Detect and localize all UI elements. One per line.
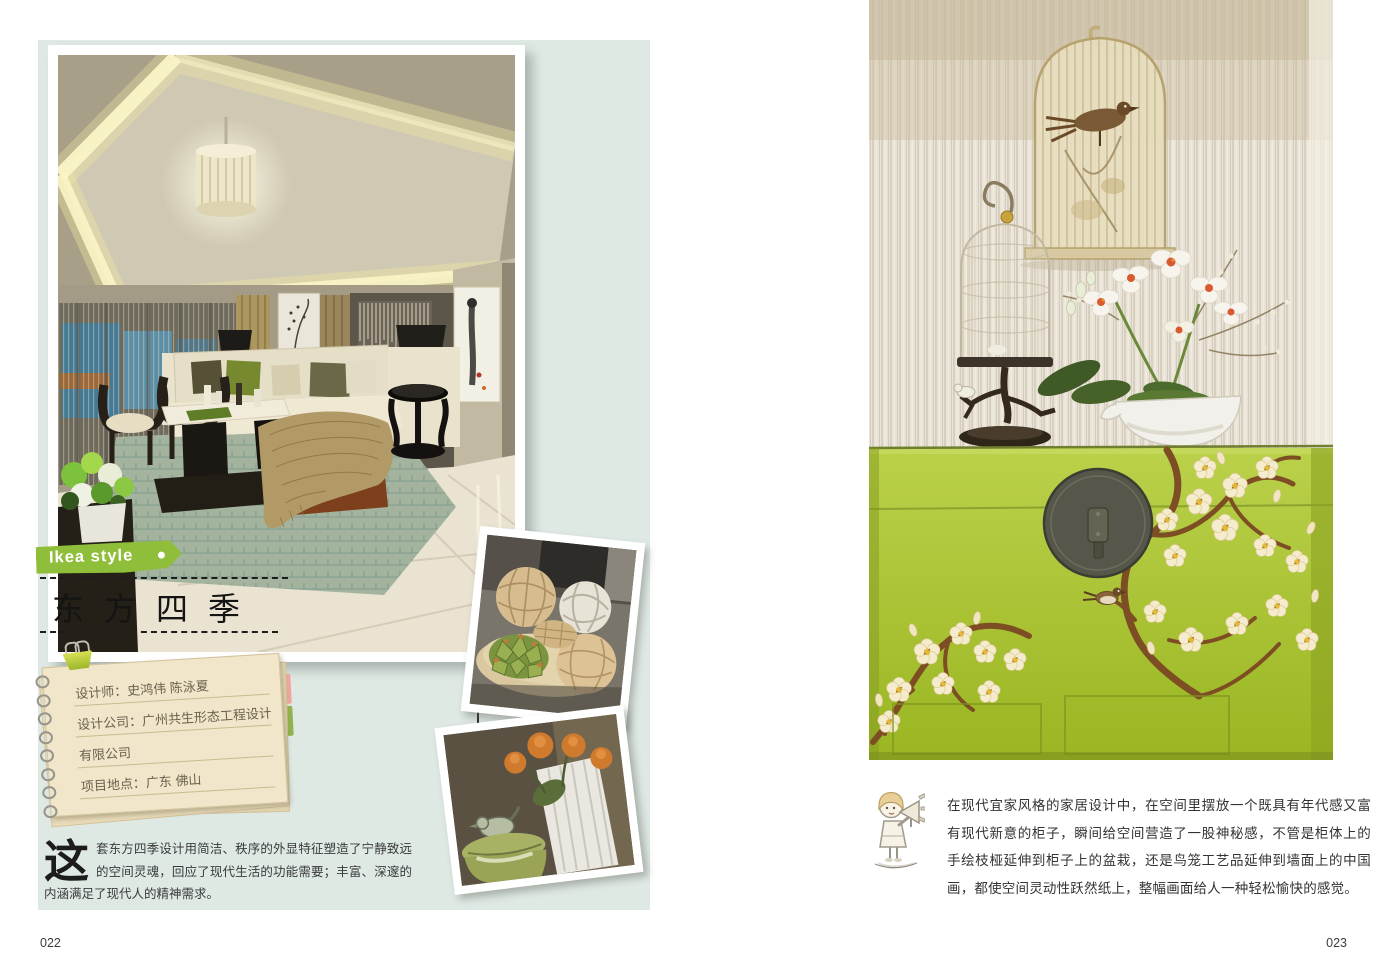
intro-paragraph: 这 套东方四季设计用简洁、秩序的外显特征塑造了宁静致远的空间灵魂，回应了现代生活… xyxy=(44,838,412,906)
page-number-right: 023 xyxy=(1287,936,1347,950)
right-page-caption: 在现代宜家风格的家居设计中，在空间里摆放一个既具有年代感又富有现代新意的柜子，瞬… xyxy=(947,792,1371,902)
cabinet-illustration xyxy=(869,0,1333,760)
page-title: 东方四季 xyxy=(52,584,260,630)
flowers-illustration xyxy=(443,714,634,886)
cabinet-photo xyxy=(869,0,1333,760)
intro-text: 套东方四季设计用简洁、秩序的外显特征塑造了宁静致远的空间灵魂，回应了现代生活的功… xyxy=(44,842,412,901)
detail-photo-flowers xyxy=(434,705,643,895)
book-spread: Ikea style 东方四季 设计师：史鸿伟 陈泳夏 设计公司：广州共生形态工… xyxy=(0,0,1379,974)
decor-balls-illustration xyxy=(470,535,637,720)
dashed-rule-bottom xyxy=(40,631,278,633)
detail-photo-decor-balls xyxy=(461,526,646,728)
section-banner: Ikea style xyxy=(36,540,183,576)
green-cabinet xyxy=(869,445,1333,760)
banner-label: Ikea style xyxy=(49,546,134,567)
wall-birdcage-art xyxy=(1020,27,1180,271)
announcer-icon xyxy=(867,788,925,870)
page-number-left: 022 xyxy=(40,936,61,950)
note-location: 项目地点：广东 佛山 xyxy=(78,764,275,799)
dashed-rule-top xyxy=(40,577,288,579)
project-notepad: 设计师：史鸿伟 陈泳夏 设计公司：广州共生形态工程设计 有限公司 项目地点：广东… xyxy=(42,653,289,817)
cabinet-medallion xyxy=(1044,469,1152,577)
note-company-2: 有限公司 xyxy=(76,733,273,768)
drop-cap: 这 xyxy=(44,842,89,882)
note-company: 设计公司：广州共生形态工程设计 xyxy=(75,703,272,738)
